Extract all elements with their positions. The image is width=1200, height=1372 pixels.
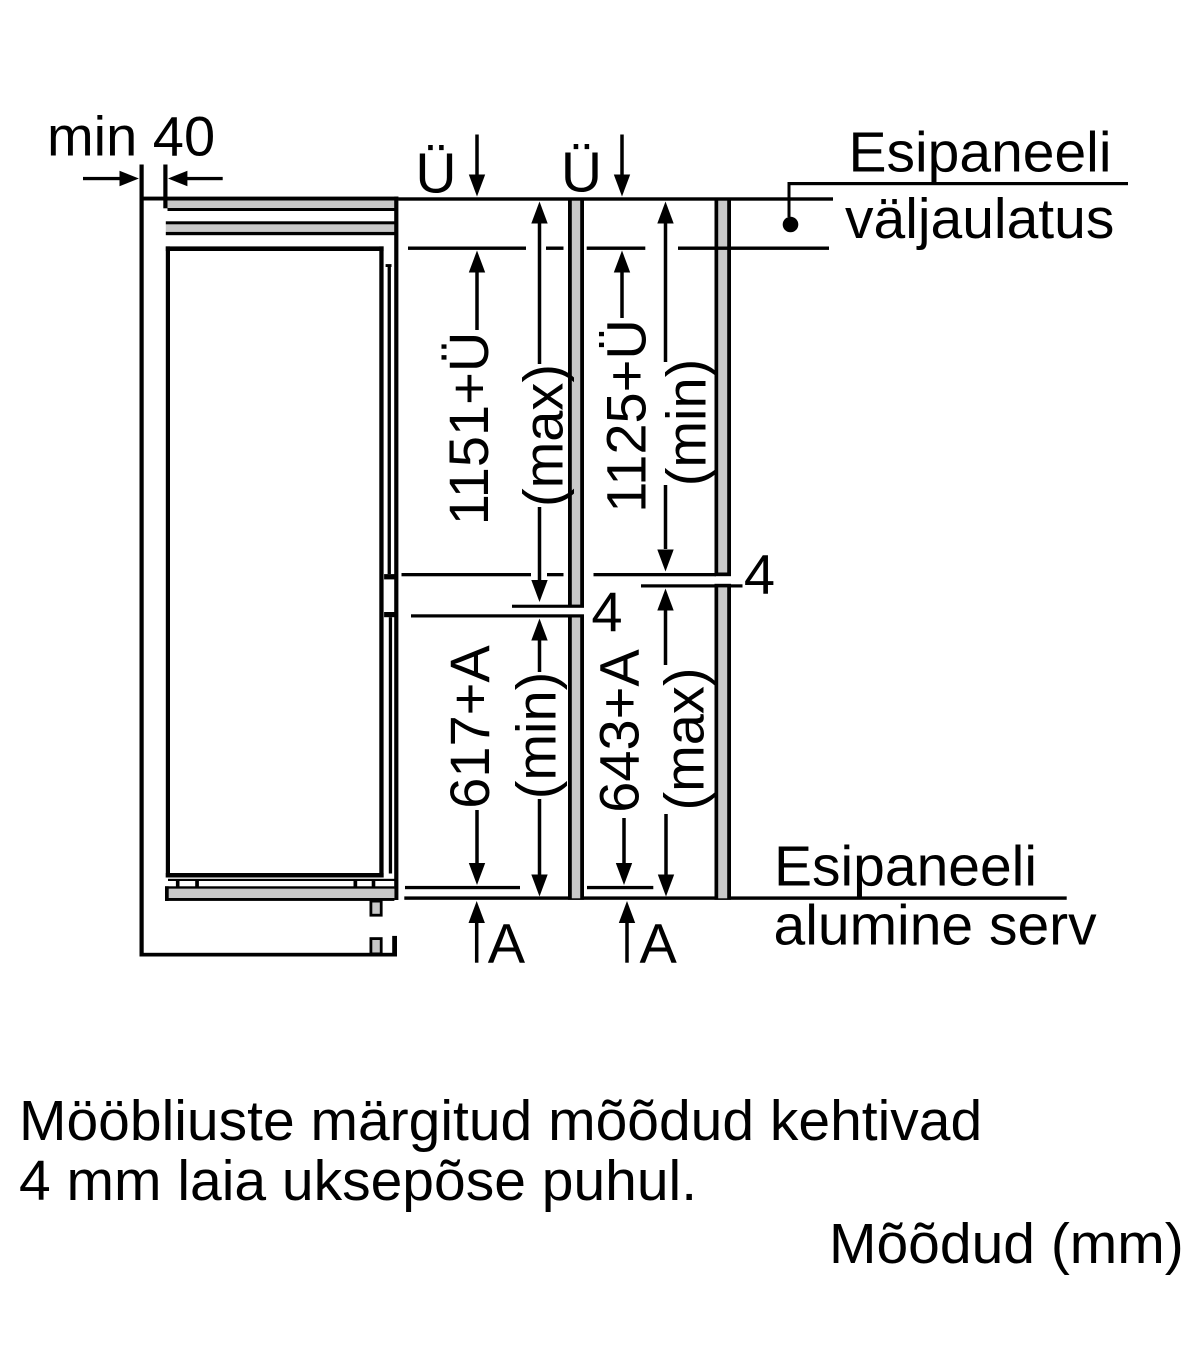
svg-text:Mööbliuste märgitud mõõdud keh: Mööbliuste märgitud mõõdud kehtivad xyxy=(19,1089,982,1153)
svg-text:4: 4 xyxy=(591,580,622,643)
svg-text:väljaulatus: väljaulatus xyxy=(845,187,1114,251)
svg-text:A: A xyxy=(488,912,526,975)
svg-text:min 40: min 40 xyxy=(47,105,215,168)
svg-text:(max): (max) xyxy=(653,667,716,810)
svg-text:1125+Ü: 1125+Ü xyxy=(595,319,658,513)
svg-text:(min): (min) xyxy=(505,672,568,800)
svg-text:1151+Ü: 1151+Ü xyxy=(437,332,500,526)
svg-text:617+A: 617+A xyxy=(438,645,501,809)
svg-text:Mõõdud (mm): Mõõdud (mm) xyxy=(829,1212,1184,1276)
svg-text:Esipaneeli: Esipaneeli xyxy=(774,835,1037,899)
svg-text:4: 4 xyxy=(744,543,775,606)
svg-text:Ü: Ü xyxy=(415,142,456,206)
svg-text:alumine serv: alumine serv xyxy=(774,894,1098,958)
svg-text:(min): (min) xyxy=(655,359,718,487)
svg-text:Ü: Ü xyxy=(561,141,602,205)
svg-text:4 mm laia uksepõse puhul.: 4 mm laia uksepõse puhul. xyxy=(19,1149,697,1213)
svg-text:A: A xyxy=(640,912,678,975)
svg-text:Esipaneeli: Esipaneeli xyxy=(849,121,1112,185)
svg-text:(max): (max) xyxy=(511,364,574,507)
svg-text:643+A: 643+A xyxy=(587,649,650,813)
